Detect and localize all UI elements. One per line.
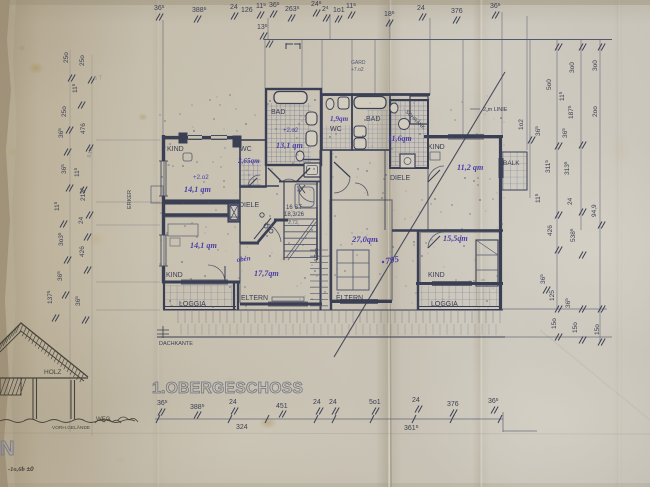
svg-text:1.OBERGESCHOSS: 1.OBERGESCHOSS xyxy=(152,380,303,397)
svg-text:18,3/26: 18,3/26 xyxy=(284,212,305,218)
svg-text:24: 24 xyxy=(412,397,420,404)
svg-text:1o1: 1o1 xyxy=(333,7,345,14)
svg-text:KIND: KIND xyxy=(166,272,183,279)
svg-text:376: 376 xyxy=(447,401,459,408)
svg-text:14,1 qm: 14,1 qm xyxy=(184,185,211,194)
svg-text:94,9: 94,9 xyxy=(591,204,598,217)
svg-text:13,1 qm: 13,1 qm xyxy=(276,141,303,150)
svg-text:24: 24 xyxy=(230,4,238,11)
svg-text:126: 126 xyxy=(241,7,253,14)
svg-text:GARD: GARD xyxy=(351,60,366,66)
svg-text:-1o,6b ±0: -1o,6b ±0 xyxy=(8,466,34,473)
svg-text:15o: 15o xyxy=(572,322,579,333)
svg-text:376: 376 xyxy=(451,8,463,15)
svg-text:15,5qm: 15,5qm xyxy=(443,234,468,243)
svg-text:15o: 15o xyxy=(594,324,601,335)
svg-text:2,65qm: 2,65qm xyxy=(237,157,260,165)
svg-text:+7.o2: +7.o2 xyxy=(351,67,364,73)
svg-text:WEG: WEG xyxy=(96,417,111,423)
svg-text:25o: 25o xyxy=(63,52,70,63)
svg-text:3o0: 3o0 xyxy=(569,62,576,73)
svg-text:+2.o2: +2.o2 xyxy=(193,174,209,181)
svg-text:VORH.GELÄNDE: VORH.GELÄNDE xyxy=(52,424,90,431)
svg-text:DACHKANTE: DACHKANTE xyxy=(159,341,193,347)
svg-text:N: N xyxy=(0,438,14,460)
svg-text:DIELE: DIELE xyxy=(239,202,260,209)
svg-text:BAD: BAD xyxy=(271,109,285,116)
svg-text:14,1 qm: 14,1 qm xyxy=(190,241,217,250)
svg-text:25o: 25o xyxy=(61,106,68,117)
svg-text:ELTERN: ELTERN xyxy=(241,295,268,302)
svg-text:1,9qm: 1,9qm xyxy=(330,115,349,123)
svg-text:125: 125 xyxy=(549,290,556,301)
svg-text:3,12: 3,12 xyxy=(296,183,301,192)
svg-text:27,0qm: 27,0qm xyxy=(351,234,378,244)
svg-text:11,6qm: 11,6qm xyxy=(388,134,412,143)
svg-text:4,2oo: 4,2oo xyxy=(314,248,320,262)
svg-text:426: 426 xyxy=(79,246,86,257)
svg-text:6 T: 6 T xyxy=(94,75,103,82)
svg-text:24: 24 xyxy=(567,197,574,205)
svg-text:5o0: 5o0 xyxy=(546,79,553,90)
svg-text:WC: WC xyxy=(240,146,252,153)
svg-text:24: 24 xyxy=(78,216,85,224)
svg-text:+2.o2: +2.o2 xyxy=(283,128,299,134)
svg-text:324: 324 xyxy=(236,424,248,431)
svg-text:HOLZ: HOLZ xyxy=(44,369,61,376)
svg-text:LOGGIA: LOGGIA xyxy=(179,301,206,308)
svg-text:17,7qm: 17,7qm xyxy=(254,269,279,278)
svg-text:LOGGIA: LOGGIA xyxy=(431,301,458,308)
svg-text:476: 476 xyxy=(80,123,87,134)
svg-text:DIELE: DIELE xyxy=(390,175,411,182)
svg-text:451: 451 xyxy=(276,403,288,410)
svg-text:2 m LINIE: 2 m LINIE xyxy=(483,107,508,113)
svg-text:5o1: 5o1 xyxy=(369,399,381,406)
svg-text:24: 24 xyxy=(329,399,337,406)
svg-text:24: 24 xyxy=(417,5,425,12)
svg-text:426: 426 xyxy=(547,225,554,236)
svg-text:15o: 15o xyxy=(551,318,558,329)
svg-text:WC: WC xyxy=(330,126,342,133)
svg-text:24: 24 xyxy=(229,399,237,406)
svg-text:BALK: BALK xyxy=(503,160,520,167)
svg-text:25o: 25o xyxy=(79,55,86,66)
svg-text:2oo: 2oo xyxy=(592,106,599,117)
svg-text:KIND: KIND xyxy=(167,146,184,153)
svg-text:3o0: 3o0 xyxy=(592,60,599,71)
svg-text:ERKER: ERKER xyxy=(127,190,133,209)
svg-text:1o2: 1o2 xyxy=(518,119,525,130)
svg-text:KIND: KIND xyxy=(428,272,445,279)
svg-text:24: 24 xyxy=(313,399,321,406)
svg-text:KIND: KIND xyxy=(428,144,445,151)
svg-text:11,2 qm: 11,2 qm xyxy=(457,163,483,172)
